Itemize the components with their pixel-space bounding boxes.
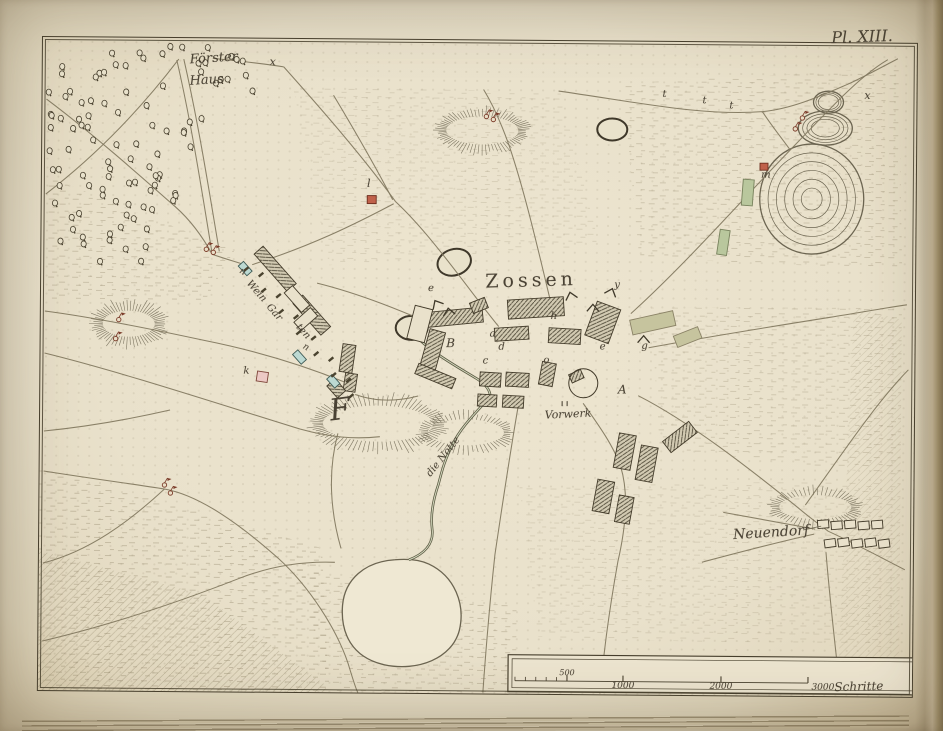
label-letter-n2: n [301,343,311,354]
label-letter-A: A [618,384,627,396]
label-letter-x-nw: x [270,56,276,67]
label-letter-l: l [367,178,371,189]
label-zossen: Zossen [485,270,577,291]
label-letter-x-ne: x [864,90,870,101]
label-ten: ten [294,323,312,342]
label-die-notte: die Notte [425,435,462,478]
label-letter-a: a [490,330,496,340]
label-letter-t3: t [729,101,733,111]
label-foerster: Förster [189,50,238,66]
map-sheet: FörsterHausZossenVorwerkNeuendorfdie Not… [37,36,918,698]
label-letter-g: g [641,342,647,352]
page-edge-bottom [22,714,909,731]
label-scale-2000: 2000 [709,683,732,692]
label-letter-k: k [243,367,249,377]
label-letter-t2: t [702,96,706,106]
label-letter-n1: n [237,267,247,278]
label-neuendorf: Neuendorf [733,523,810,542]
label-haus: Haus [189,73,224,88]
label-scale-1000: 1000 [611,682,634,691]
label-scale-3000: 3000 [811,684,834,693]
label-letter-t1: t [663,90,667,100]
label-letter-F: F [328,394,353,426]
page-edge-right [915,0,943,731]
map-photo: FörsterHausZossenVorwerkNeuendorfdie Not… [0,0,943,731]
label-scale-500: 500 [559,669,574,677]
label-letter-d: d [498,343,504,353]
label-scale-unit: Schritte [834,680,883,693]
map-annotation-layer: FörsterHausZossenVorwerkNeuendorfdie Not… [38,37,917,697]
label-wein: Wein [244,279,268,304]
label-letter-B: B [446,337,455,349]
label-letter-h: h [551,312,558,322]
label-letter-y: y [614,281,620,291]
label-letter-c: c [483,356,489,366]
label-letter-e2: e [600,342,606,352]
label-gar: Gar [264,303,284,324]
label-vorwerk: Vorwerk [544,408,591,421]
label-letter-m: m [761,171,771,181]
label-letter-e1: e [428,284,434,294]
label-letter-o: o [543,356,549,366]
